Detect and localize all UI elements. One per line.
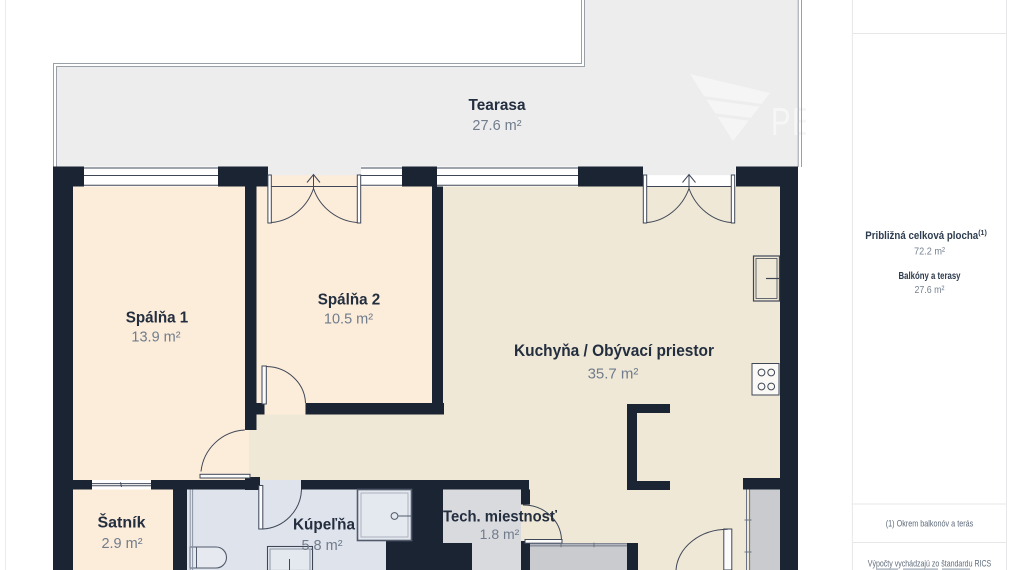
svg-text:Výpočty vychádzajú zo štandard: Výpočty vychádzajú zo štandardu RICS — [868, 559, 992, 570]
svg-text:Tech. miestnosť: Tech. miestnosť — [443, 509, 558, 526]
svg-text:1.8 m²: 1.8 m² — [480, 526, 520, 542]
svg-text:(1) Okrem balkonóv a terás: (1) Okrem balkonóv a terás — [886, 519, 974, 530]
svg-text:Tearasa: Tearasa — [469, 97, 526, 114]
svg-text:Kuchyňa / Obývací priestor: Kuchyňa / Obývací priestor — [514, 341, 714, 360]
svg-text:27.6 m²: 27.6 m² — [472, 118, 521, 134]
svg-text:Balkóny a terasy: Balkóny a terasy — [899, 270, 961, 282]
svg-text:72.2 m²: 72.2 m² — [914, 246, 945, 258]
svg-text:13.9 m²: 13.9 m² — [131, 330, 180, 346]
svg-text:35.7 m²: 35.7 m² — [588, 366, 639, 383]
svg-text:PE: PE — [771, 101, 813, 144]
svg-text:10.5 m²: 10.5 m² — [324, 312, 373, 328]
svg-text:Spálňa 2: Spálňa 2 — [318, 292, 381, 309]
svg-text:Spálňa 1: Spálňa 1 — [126, 310, 189, 327]
svg-text:2.9 m²: 2.9 m² — [101, 536, 142, 552]
svg-text:5.8 m²: 5.8 m² — [301, 538, 342, 554]
svg-text:Približná celková plocha(1): Približná celková plocha(1) — [865, 230, 987, 242]
svg-text:Šatník: Šatník — [97, 513, 145, 532]
svg-text:Kúpeľňa: Kúpeľňa — [293, 517, 355, 534]
svg-text:27.6 m²: 27.6 m² — [915, 284, 945, 296]
